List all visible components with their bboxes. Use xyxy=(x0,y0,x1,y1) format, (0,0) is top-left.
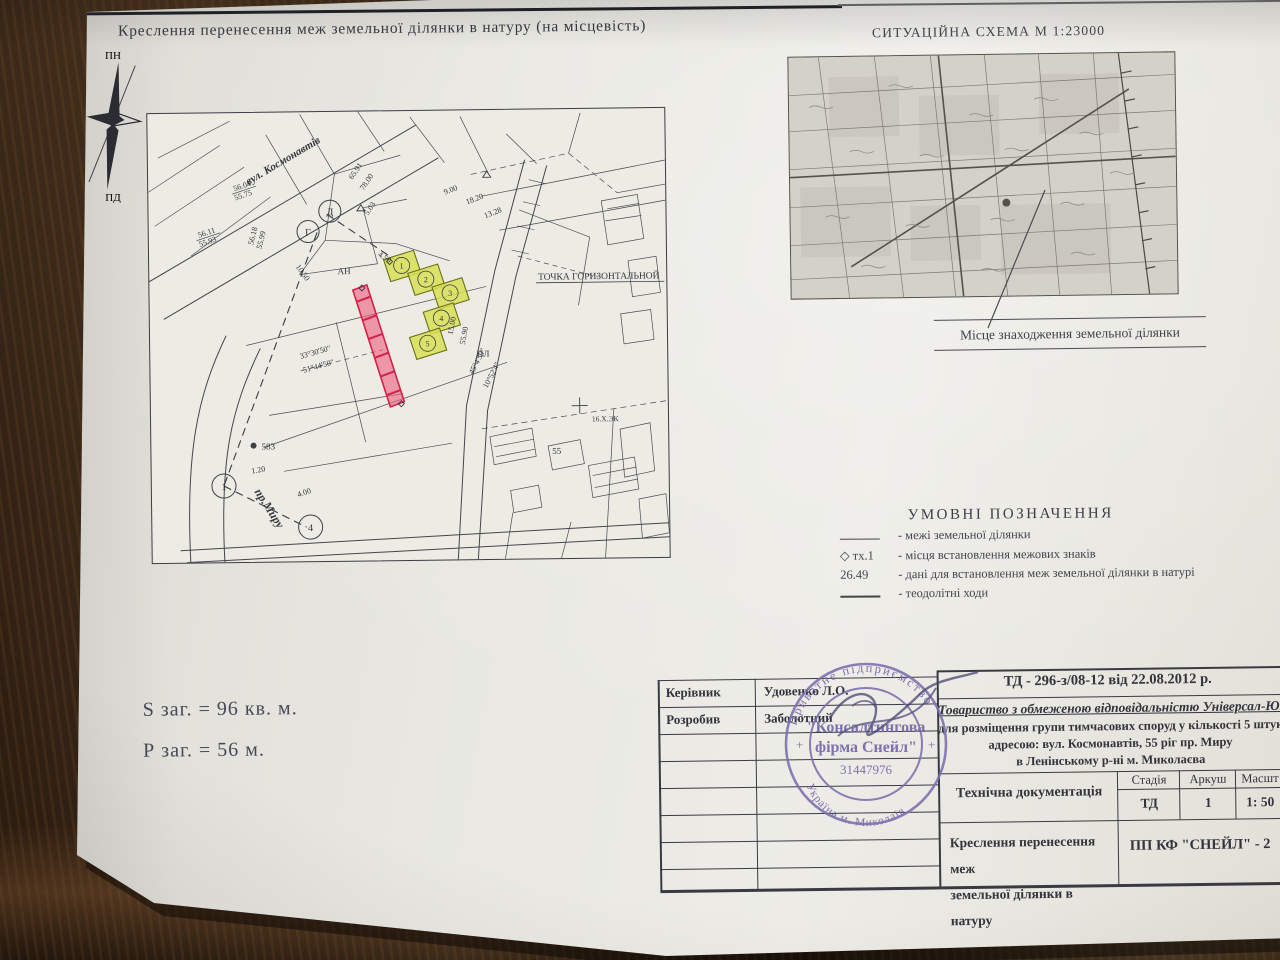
measure-label: 10.50 xyxy=(294,263,312,283)
stamp-line2: фірма Снейл" xyxy=(815,739,917,756)
document-number: ТД - 296-з/08-12 від 22.08.2012 р. xyxy=(958,670,1258,691)
station-1: 1 xyxy=(221,482,226,493)
measure-label: 1.20 xyxy=(251,464,266,475)
map-label-an: АН xyxy=(338,266,352,276)
parcel-number-1: 1 xyxy=(400,261,404,270)
legend-symbol-marker: ◇ тх.1 xyxy=(840,547,898,564)
measure-label: 4.00 xyxy=(296,486,312,499)
total-area: S заг. = 96 кв. м. xyxy=(143,697,298,722)
total-perimeter: Р заг. = 56 м. xyxy=(143,738,298,763)
station-4: 4 xyxy=(308,523,313,534)
highlighted-parcel-red xyxy=(353,284,405,407)
stamp-plus-right: + xyxy=(928,737,935,752)
document-sheet: Креслення перенесення меж земельної діля… xyxy=(0,0,1280,960)
role-label-rozrobyv: Розробив xyxy=(666,711,720,728)
stamp-plus-left: + xyxy=(796,737,803,752)
map-label-583: 583 xyxy=(261,441,275,451)
compass-south-label: ПД xyxy=(105,192,121,203)
stamp-code: 31447976 xyxy=(840,762,893,777)
measure-label: 78.00 xyxy=(358,172,376,192)
stamp-line1: "Консалтингова xyxy=(807,719,926,736)
legend-text: - теодолітні ходи xyxy=(898,585,988,601)
measure-label: 55.90 xyxy=(458,326,470,345)
legend-row: 26.49 - дані для встановлення меж земель… xyxy=(840,564,1250,583)
legend-text: - місця встановлення межових знаків xyxy=(898,546,1096,563)
drawing-frame-top-line-faint xyxy=(838,0,1280,6)
angle-label: 10°52'4" xyxy=(481,361,502,390)
stage-value: ТД xyxy=(1119,795,1179,812)
page-title: Креслення перенесення меж земельної діля… xyxy=(118,17,646,41)
parcel-number-2: 2 xyxy=(424,275,428,284)
sheet-header: Аркуш xyxy=(1181,772,1235,788)
firm-name: ПП КФ "СНЕЙЛ" - 2 xyxy=(1130,836,1280,855)
map-label-mark: 16.Х.ЭК xyxy=(592,414,620,423)
location-label-box: Місце знаходження земельної ділянки xyxy=(934,316,1206,351)
situation-schema-title: СИТУАЦІЙНА СХЕМА М 1:23000 xyxy=(872,23,1105,41)
legend-row: ◇ тх.1 - місця встановлення межових знак… xyxy=(840,544,1250,564)
measure-label: 5.03 xyxy=(362,200,377,217)
legend-symbol-number: 26.49 xyxy=(840,567,898,583)
location-label: Місце знаходження земельної ділянки xyxy=(960,324,1180,343)
location-pointer-line xyxy=(950,150,1070,340)
legend-row: - межі земельної ділянки xyxy=(840,525,1250,544)
scale-value: 1: 50 xyxy=(1237,794,1280,811)
stamp-arc-bottom: Україна м. Миколаїв xyxy=(804,782,908,829)
compass-north-label: ПН xyxy=(105,50,121,62)
map-label-55: 55 xyxy=(552,446,562,456)
parcel-number-5: 5 xyxy=(426,339,430,348)
legend: УМОВНІ ПОЗНАЧЕННЯ - межі земельної ділян… xyxy=(840,504,1251,602)
legend-title: УМОВНІ ПОЗНАЧЕННЯ xyxy=(908,504,1250,524)
measure-label: 13.28 xyxy=(483,205,503,220)
street-label-kosmonavtiv: вул. Космонавтів xyxy=(244,134,323,187)
angle-label: 51°44'50" xyxy=(302,357,335,374)
parcel-number-4: 4 xyxy=(439,314,443,323)
photo-of-survey-document: Креслення перенесення меж земельної діля… xyxy=(0,0,1280,960)
drawing-name-line2: земельної ділянки в натуру xyxy=(950,880,1116,934)
measure-label: 18.20 xyxy=(465,192,485,207)
scale-header: Масшт xyxy=(1237,771,1280,787)
map-note-point: ТОЧКА ГОРИЗОНТАЛЬНОЙ xyxy=(538,269,660,282)
totals: S заг. = 96 кв. м. Р заг. = 56 м. xyxy=(143,697,299,781)
legend-symbol-thick-line xyxy=(840,586,898,602)
legend-row: - теодолітні ходи xyxy=(840,583,1250,602)
station-d: Д xyxy=(326,207,333,218)
parcel-number-3: 3 xyxy=(448,289,452,298)
measure-label: 9.00 xyxy=(442,183,458,196)
sheet-value: 1 xyxy=(1181,795,1235,812)
legend-text: - межі земельної ділянки xyxy=(898,527,1031,543)
legend-symbol-line xyxy=(840,528,898,544)
street-label-myru: пр.Миру xyxy=(252,486,288,531)
cadastral-map: 1 2 3 4 5 xyxy=(146,107,670,564)
role-label-kerivnyk: Керівник xyxy=(666,684,721,701)
station-g: Г xyxy=(305,227,311,238)
legend-text: - дані для встановлення меж земельної ді… xyxy=(898,565,1195,583)
company-stamp: Приватне підприємство Україна м. Миколаї… xyxy=(768,652,993,852)
map-label-pl: ПЛ xyxy=(477,349,490,359)
svg-text:Україна м. Миколаїв: Україна м. Миколаїв xyxy=(804,782,908,829)
stage-header: Стадія xyxy=(1119,772,1179,788)
